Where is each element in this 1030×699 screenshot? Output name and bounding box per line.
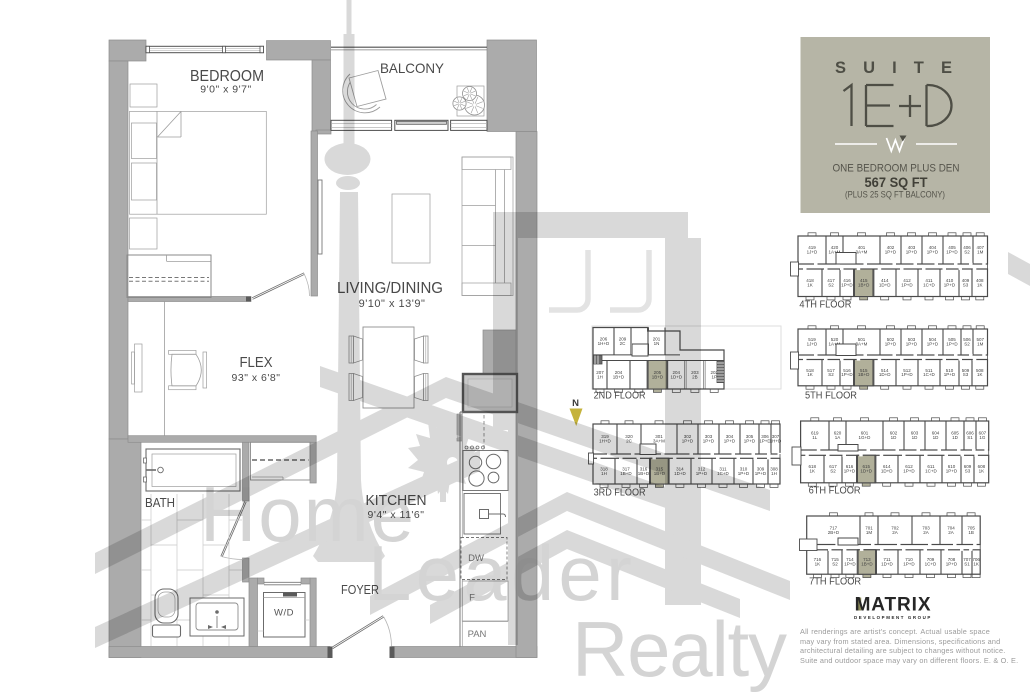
svg-text:W/D: W/D	[274, 608, 294, 619]
svg-text:2B+D: 2B+D	[828, 530, 840, 535]
svg-text:S2: S2	[828, 372, 834, 377]
svg-text:1D: 1D	[952, 435, 959, 440]
svg-text:1P+D: 1P+D	[903, 562, 915, 567]
svg-text:S2: S2	[964, 342, 970, 347]
svg-text:1D+D: 1D+D	[879, 282, 891, 287]
svg-text:1K: 1K	[815, 562, 821, 567]
svg-text:1P+D: 1P+D	[901, 282, 913, 287]
svg-text:PAN: PAN	[468, 629, 487, 640]
svg-text:2A: 2A	[892, 530, 898, 535]
svg-text:1M: 1M	[977, 342, 984, 347]
svg-text:1G: 1G	[979, 435, 986, 440]
svg-text:1C+D: 1C+D	[923, 282, 935, 287]
svg-text:1P+D: 1P+D	[885, 250, 897, 255]
svg-text:4TH FLOOR: 4TH FLOOR	[799, 300, 851, 311]
svg-text:S1: S1	[967, 435, 973, 440]
svg-text:Realty: Realty	[572, 605, 787, 693]
svg-text:1K: 1K	[807, 282, 813, 287]
svg-text:ONE BEDROOM PLUS DEN: ONE BEDROOM PLUS DEN	[833, 163, 960, 175]
svg-text:1P+D: 1P+D	[744, 439, 756, 444]
svg-text:9'0" x 9'7": 9'0" x 9'7"	[200, 84, 251, 96]
svg-text:3A+M: 3A+M	[856, 342, 868, 347]
svg-text:1K: 1K	[977, 372, 983, 377]
svg-text:6TH FLOOR: 6TH FLOOR	[809, 486, 861, 497]
svg-text:1B+D: 1B+D	[858, 372, 870, 377]
svg-text:1J+D: 1J+D	[807, 250, 818, 255]
svg-text:1H: 1H	[597, 374, 603, 379]
svg-text:1P+D: 1P+D	[841, 282, 853, 287]
svg-text:1B+D: 1B+D	[613, 374, 625, 379]
svg-text:1G+D: 1G+D	[859, 435, 872, 440]
svg-text:S2: S2	[832, 562, 838, 567]
svg-text:1P+D: 1P+D	[946, 469, 958, 474]
svg-text:5TH FLOOR: 5TH FLOOR	[805, 391, 857, 402]
svg-text:1P+D: 1P+D	[946, 250, 958, 255]
svg-text:N: N	[572, 398, 579, 409]
svg-text:1D: 1D	[912, 435, 919, 440]
svg-text:Leader: Leader	[368, 529, 632, 617]
svg-text:1D: 1D	[933, 435, 940, 440]
svg-text:BALCONY: BALCONY	[380, 60, 445, 76]
svg-text:1P+D: 1P+D	[927, 342, 939, 347]
svg-text:1P+D: 1P+D	[738, 471, 750, 476]
svg-text:1D+D: 1D+D	[881, 469, 893, 474]
svg-text:1P+D: 1P+D	[844, 469, 856, 474]
svg-text:S3: S3	[963, 282, 969, 287]
svg-text:S3: S3	[965, 469, 971, 474]
svg-text:1K: 1K	[807, 372, 813, 377]
svg-text:2C: 2C	[620, 341, 627, 346]
svg-text:S2: S2	[828, 282, 834, 287]
svg-text:1P+D: 1P+D	[844, 562, 856, 567]
svg-text:(PLUS 25 SQ FT BALCONY): (PLUS 25 SQ FT BALCONY)	[845, 190, 945, 200]
svg-text:1P: 1P	[711, 374, 717, 379]
svg-text:1P+D: 1P+D	[903, 469, 915, 474]
svg-text:1B+D: 1B+D	[652, 374, 664, 379]
svg-text:567 SQ FT: 567 SQ FT	[865, 175, 929, 190]
svg-text:1J+D: 1J+D	[807, 342, 818, 347]
svg-text:FLEX: FLEX	[240, 355, 273, 371]
svg-text:3A+M: 3A+M	[856, 250, 868, 255]
svg-text:1P+D: 1P+D	[885, 342, 897, 347]
svg-text:1C+D: 1C+D	[923, 372, 935, 377]
svg-text:1N: 1N	[654, 341, 660, 346]
svg-text:1H+D: 1H+D	[770, 439, 782, 444]
svg-text:1K: 1K	[979, 469, 985, 474]
svg-text:1A: 1A	[835, 435, 841, 440]
svg-text:1P+D: 1P+D	[944, 372, 956, 377]
svg-text:93" x 6'8": 93" x 6'8"	[232, 372, 281, 384]
svg-text:1K: 1K	[977, 282, 983, 287]
svg-text:MATRIX: MATRIX	[855, 595, 932, 616]
svg-text:2A: 2A	[923, 530, 929, 535]
svg-text:1P+D: 1P+D	[724, 439, 736, 444]
svg-text:1P+D: 1P+D	[946, 562, 958, 567]
svg-text:3A+M: 3A+M	[653, 439, 665, 444]
svg-text:1B+D: 1B+D	[861, 562, 873, 567]
svg-text:9'10" x 13'9": 9'10" x 13'9"	[359, 298, 426, 310]
svg-text:1L: 1L	[812, 435, 818, 440]
svg-text:1M: 1M	[866, 530, 873, 535]
svg-text:1C+D: 1C+D	[925, 562, 937, 567]
svg-text:1P+D: 1P+D	[841, 372, 853, 377]
svg-text:1P+D: 1P+D	[927, 250, 939, 255]
svg-text:2A: 2A	[948, 530, 954, 535]
svg-text:1P+D: 1P+D	[703, 439, 715, 444]
svg-text:1P+D: 1P+D	[944, 282, 956, 287]
svg-text:BATH: BATH	[145, 496, 175, 510]
svg-text:1P+D: 1P+D	[901, 372, 913, 377]
svg-text:S2: S2	[964, 250, 970, 255]
svg-text:1D+D: 1D+D	[881, 562, 893, 567]
svg-text:7TH FLOOR: 7TH FLOOR	[809, 577, 861, 588]
svg-text:1M: 1M	[977, 250, 984, 255]
svg-text:1H: 1H	[771, 471, 777, 476]
svg-text:S3: S3	[963, 372, 969, 377]
svg-text:1P+D: 1P+D	[906, 342, 918, 347]
svg-text:S2: S2	[830, 469, 836, 474]
svg-text:1D+D: 1D+D	[860, 469, 872, 474]
svg-text:1H+D: 1H+D	[598, 341, 610, 346]
svg-text:1K: 1K	[810, 469, 816, 474]
svg-text:1P+D: 1P+D	[755, 471, 767, 476]
svg-text:S1: S1	[964, 562, 970, 567]
svg-text:1P+D: 1P+D	[906, 250, 918, 255]
svg-text:1B+D: 1B+D	[858, 282, 870, 287]
svg-text:1B: 1B	[968, 530, 974, 535]
svg-text:2ND FLOOR: 2ND FLOOR	[594, 391, 646, 402]
svg-text:BEDROOM: BEDROOM	[190, 68, 264, 85]
svg-text:1D+D: 1D+D	[879, 372, 891, 377]
svg-text:1K: 1K	[973, 562, 979, 567]
svg-text:1P+D: 1P+D	[946, 342, 958, 347]
svg-text:1C+D: 1C+D	[925, 469, 937, 474]
svg-text:DEVELOPMENT GROUP: DEVELOPMENT GROUP	[854, 615, 932, 620]
svg-text:1B+D: 1B+D	[638, 471, 650, 476]
svg-text:1D: 1D	[891, 435, 898, 440]
